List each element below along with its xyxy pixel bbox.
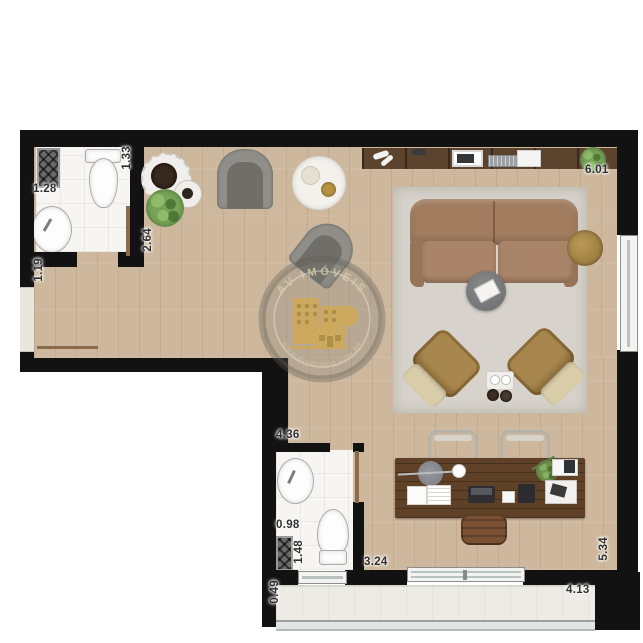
- bathroom1-cabinet: [37, 148, 60, 188]
- window-right: [620, 235, 638, 352]
- wall-bottom-left: [20, 358, 288, 372]
- dim-bath2-width: 0.98: [276, 519, 300, 531]
- toilet2-bowl: [317, 509, 349, 556]
- sofa-back-split: [493, 201, 495, 243]
- wall-left-upper: [20, 147, 34, 287]
- dim-balcony-end: 0.49: [269, 580, 281, 604]
- watermark-logo: AV IMÓVEIS WWW.AVIMOVEIS.COM.BR: [257, 254, 387, 384]
- dim-bath1-width: 1.28: [33, 183, 57, 195]
- desk-chair-2-backrest: [506, 435, 544, 441]
- desk-chair-1-backrest: [434, 435, 472, 441]
- sideboard-tray: [488, 155, 520, 167]
- desk-small-dish: [452, 464, 466, 478]
- pouf: [567, 230, 603, 266]
- sink2: [277, 458, 314, 504]
- side-table-small-top: [182, 188, 193, 199]
- tray-cup-1: [490, 375, 500, 385]
- dim-bath2-length: 1.48: [293, 540, 305, 564]
- lounge-chair-1: [217, 149, 273, 209]
- office-chair: [461, 514, 507, 545]
- sideboard-box: [517, 150, 541, 167]
- sofa-seat-right: [498, 241, 572, 283]
- bathroom2-cabinet: [276, 536, 293, 571]
- floor-pom-1: [487, 389, 499, 401]
- wall-bathroom2-right: [353, 502, 364, 573]
- side-table-large-top: [151, 163, 177, 189]
- dim-bath1-length: 1.33: [121, 146, 133, 170]
- wall-bathroom2-top: [262, 443, 330, 452]
- floor-plan: AV IMÓVEIS WWW.AVIMOVEIS.COM.BR 1.28 1.3…: [0, 0, 643, 643]
- balcony-railing: [276, 620, 595, 631]
- round-table: [292, 156, 346, 210]
- wall-right-lower: [617, 350, 638, 572]
- dim-living-left: 3.24: [364, 556, 388, 568]
- bathroom2-door: [355, 451, 359, 503]
- dim-living-top: 6.01: [585, 164, 609, 176]
- tv-screen: [457, 154, 474, 163]
- dim-kitchen-wall: 2.64: [142, 228, 154, 252]
- wall-right-upper: [617, 147, 638, 235]
- dim-balcony-width: 4.13: [566, 584, 590, 596]
- window-living-sliding: [407, 567, 525, 582]
- wall-bottom-b: [345, 570, 407, 585]
- round-table-plate: [301, 166, 320, 185]
- desk-notebook: [518, 484, 535, 503]
- sideboard-small-item: [412, 149, 426, 155]
- wall-top: [20, 130, 638, 147]
- toilet1-bowl: [89, 158, 118, 208]
- desk-paper-1: [407, 486, 427, 505]
- round-table-bowl: [321, 182, 336, 197]
- tray-cup-2: [501, 375, 511, 385]
- entrance-threshold: [20, 287, 34, 352]
- dim-hall-width: 1.19: [33, 258, 45, 282]
- floor-pom-2: [500, 390, 512, 402]
- entrance-door: [37, 346, 98, 349]
- dim-bath2-wall: 4.36: [276, 429, 300, 441]
- balcony-floor: [276, 585, 595, 623]
- window-bathroom2: [298, 571, 347, 584]
- lounge-chair-1-seat: [227, 162, 263, 209]
- desk-paper-2: [427, 485, 451, 505]
- desk-laptop-screen: [471, 488, 492, 495]
- toilet2-tank: [319, 550, 347, 565]
- sink1: [32, 206, 72, 253]
- desk-box-item: [564, 460, 575, 473]
- wall-bottom-c: [523, 570, 617, 585]
- potted-plant-hall: [146, 189, 184, 227]
- dim-living-right: 5.34: [598, 537, 610, 561]
- desk-card: [502, 491, 515, 503]
- bathroom1-door: [126, 206, 130, 256]
- wall-bathroom1-bottom-b: [118, 252, 144, 267]
